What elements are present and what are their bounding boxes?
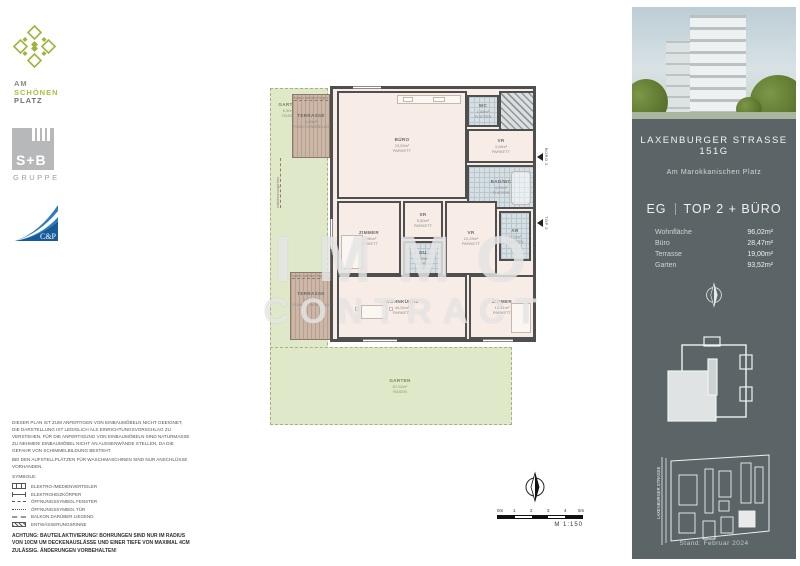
cp-logo: C&P [12,202,82,249]
garden-bottom-label: GARTEN 87,02m² RASEN [360,378,440,394]
bed-icon [511,303,531,333]
chair-icon [355,307,359,311]
scale-ticks: 0m 1 2 3 4 5m [497,508,597,515]
fenster-symbol-icon [12,501,26,502]
scale-segments [497,515,583,519]
entrance-buero: BÜRO 2 [537,148,549,166]
entwaesserungsrinne-icon [12,522,26,527]
svg-text:C&P: C&P [40,232,57,241]
legend-row: ÖFFNUNGSSYMBOL TÜR [12,507,190,512]
project-subtitle: Am Marokkanischen Platz [632,169,796,176]
highlighted-building [739,511,755,527]
project-address: LAXENBURGER STRASSE 151G [632,135,796,157]
disclaimer-block: DIESER PLAN IST ZUM ANFERTIGEN VON EINBA… [12,420,190,555]
building-outline: BÜRO23,53m²PARKETT WC1,88m²FLIESEN VR3,0… [330,86,536,342]
window [330,219,333,249]
entrance-arrow-icon [537,153,543,161]
entrance-top2: TOP 2 [537,216,549,230]
scale-bar: 0m 1 2 3 4 5m M 1:150 [497,508,597,528]
am-schoenen-platz-wordmark: AM SCHÖNEN PLATZ [14,80,82,106]
bed-icon [341,235,363,269]
terrasse-top: balkon darüber liegend TERRASSE 6,56m² F… [292,94,330,158]
achtung-note: ACHTUNG: BAUTEILAKTIVIERUNG! BOHRUNGEN S… [12,533,197,556]
symbols-heading: SYMBOLE: [12,475,190,480]
legend-row: ÖFFNUNGSSYMBOL FENSTER [12,499,190,504]
room-wc: WC1,88m²FLIESEN [467,95,499,127]
room-vr-buero: VR3,06m²PARKETT [467,129,535,163]
info-sidebar: LAXENBURGER STRASSE 151G Am Marokkanisch… [632,7,796,559]
unit-heading: EG TOP 2 + BÜRO [632,202,796,216]
room-du: DU4,00m²FLIESEN [403,241,443,275]
ground [632,112,796,119]
legend-row: BALKON DARÜBER LIEGEND [12,514,190,519]
am-schoenen-platz-ornament-icon [12,24,57,69]
disclaimer-paragraph-2: BEI DEN AUFSTELLPLÄTZEN FÜR WASCHMASCHIN… [12,457,190,471]
plan-date: Stand: Februar 2024 [632,540,796,547]
balcony-above-note-2: balkon darüber liegend [292,274,330,279]
heizkoerper-icon [12,492,26,497]
legend-row: ENTWÄSSERUNGSRINNE [12,522,190,527]
room-ar: AR1,70m²FLIESEN [499,211,531,261]
compass-icon [703,281,725,309]
legend-row: ELEKTRO-/MEDIENVERTEILER [12,483,190,489]
brand-column: AM SCHÖNEN PLATZ S+B GRUPPE C&P [12,24,82,249]
window [363,339,397,342]
unit-location-diagram [632,331,796,435]
bathtub-icon [511,171,531,205]
sb-gruppe-logo: S+B [12,128,54,170]
building-wing [666,41,692,119]
window [353,86,381,89]
site-plan: LAXENBURGER STRASSE [632,449,796,551]
window [483,339,513,342]
chair-icon [389,307,393,311]
elektro-verteiler-icon [12,483,26,489]
divider [675,203,676,215]
sb-bars-icon [32,128,50,141]
disclaimer-paragraph-1: DIESER PLAN IST ZUM ANFERTIGEN VON EINBA… [12,420,190,454]
terrasse-top-label: TERRASSE 6,56m² FUNKTIONSBELAG [293,113,329,129]
room-vr: VR10,29m²PARKETT [445,201,497,275]
dining-table-icon [361,305,387,319]
legend-row: ELEKTROHEIZKÖRPER [12,492,190,497]
scale-label: M 1:150 [497,522,583,528]
area-row: Büro28,47m² [655,239,773,250]
entrance-arrow-icon [537,219,543,227]
area-table: Wohnfläche96,02m² Büro28,47m² Terrasse19… [655,228,773,271]
sink-icon [403,97,413,102]
building-render-image [632,7,796,119]
room-sr: SR5,50m²PARKETT [403,201,443,239]
compass-icon [522,470,548,504]
unit-name: TOP 2 + BÜRO [684,202,782,216]
room-buero: BÜRO23,53m²PARKETT [337,91,467,199]
sb-gruppe-label: GRUPPE [13,173,82,182]
balkon-darueber-icon [12,516,26,518]
floorplan-sheet: AM SCHÖNEN PLATZ S+B GRUPPE C&P GARTEN 6… [0,0,800,566]
street-label: LAXENBURGER STRASSE [656,467,661,520]
sidebar-compass [632,281,796,309]
area-row: Garten93,52m² [655,261,773,272]
area-row: Wohnfläche96,02m² [655,228,773,239]
balcony-above-note: balkon darüber liegend [294,96,328,101]
unit-floor: EG [646,202,666,216]
tuer-symbol-icon [12,509,26,510]
stove-icon [433,97,445,102]
area-row: Terrasse19,00m² [655,250,773,261]
terrasse-bottom: balkon darüber liegend TERRASSE 12,44m² … [290,272,332,340]
drain-note: entwässerungsrinne [276,158,281,208]
terrasse-bottom-label: TERRASSE 12,44m² FUNKTIONSBELAG [291,291,331,307]
